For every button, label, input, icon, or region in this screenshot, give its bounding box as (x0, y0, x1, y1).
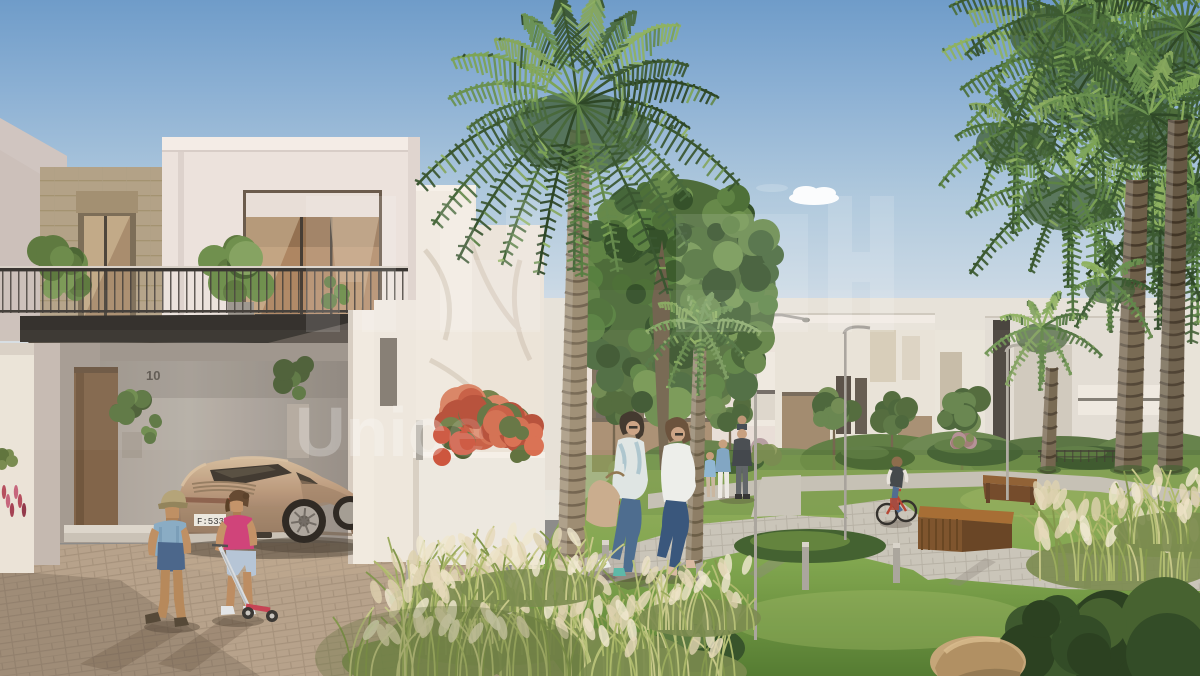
svg-text:Unice: Unice (295, 393, 486, 471)
